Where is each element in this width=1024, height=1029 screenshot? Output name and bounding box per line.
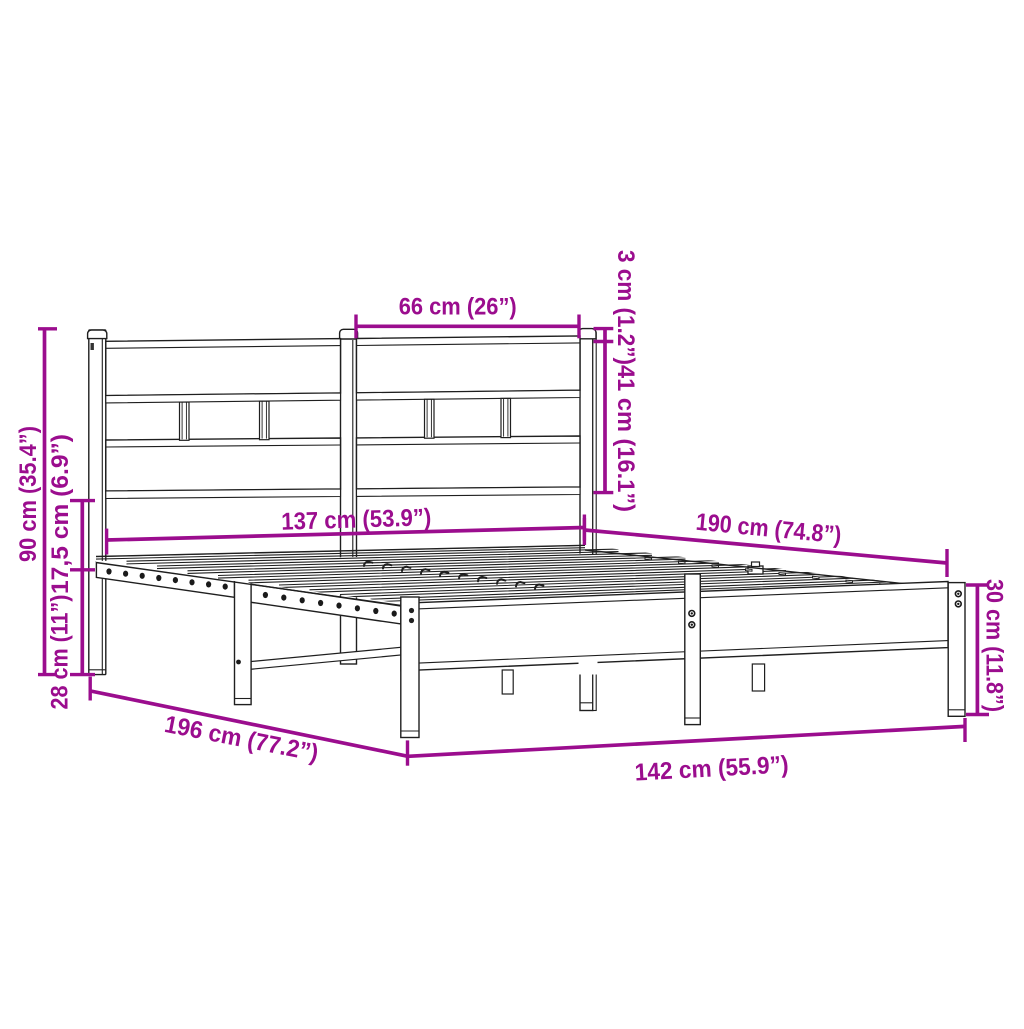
svg-text:3 cm (1.2”): 3 cm (1.2”) [612,250,639,365]
svg-text:90 cm (35.4”): 90 cm (35.4”) [15,426,42,562]
svg-text:137 cm (53.9”): 137 cm (53.9”) [281,504,432,535]
svg-text:66 cm (26”): 66 cm (26”) [399,293,517,320]
svg-text:30 cm (11.8”): 30 cm (11.8”) [981,579,1008,712]
svg-text:17,5 cm (6.9”): 17,5 cm (6.9”) [47,434,74,594]
svg-text:41 cm (16.1”): 41 cm (16.1”) [612,365,639,512]
svg-text:28 cm (11”): 28 cm (11”) [47,595,74,710]
